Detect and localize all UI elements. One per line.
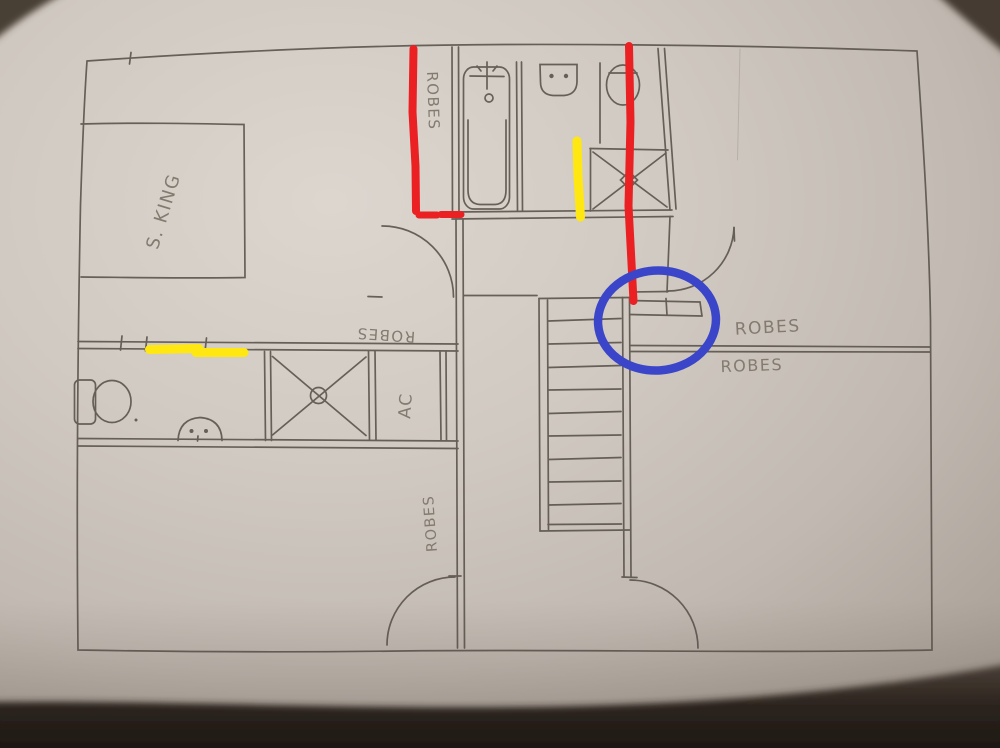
door-leaf-top-right (734, 228, 735, 242)
ac-label: AC (395, 392, 417, 420)
ensuite-robes-label: ROBES (423, 71, 443, 131)
door-leaf-bottom-right (622, 577, 637, 578)
yellow-marker-ensuite (577, 141, 581, 217)
photo-background (0, 0, 1000, 748)
right-room-robes-label-upper: ROBES (734, 316, 801, 339)
floor-plan-photo: S. KING ROBES ROBES AC ROBES ROBES ROBES (0, 0, 1000, 748)
yellow-marker-bathroom-wall (150, 349, 245, 353)
right-room-robes-label-lower: ROBES (720, 355, 783, 376)
red-marker-right-wall (629, 46, 634, 301)
